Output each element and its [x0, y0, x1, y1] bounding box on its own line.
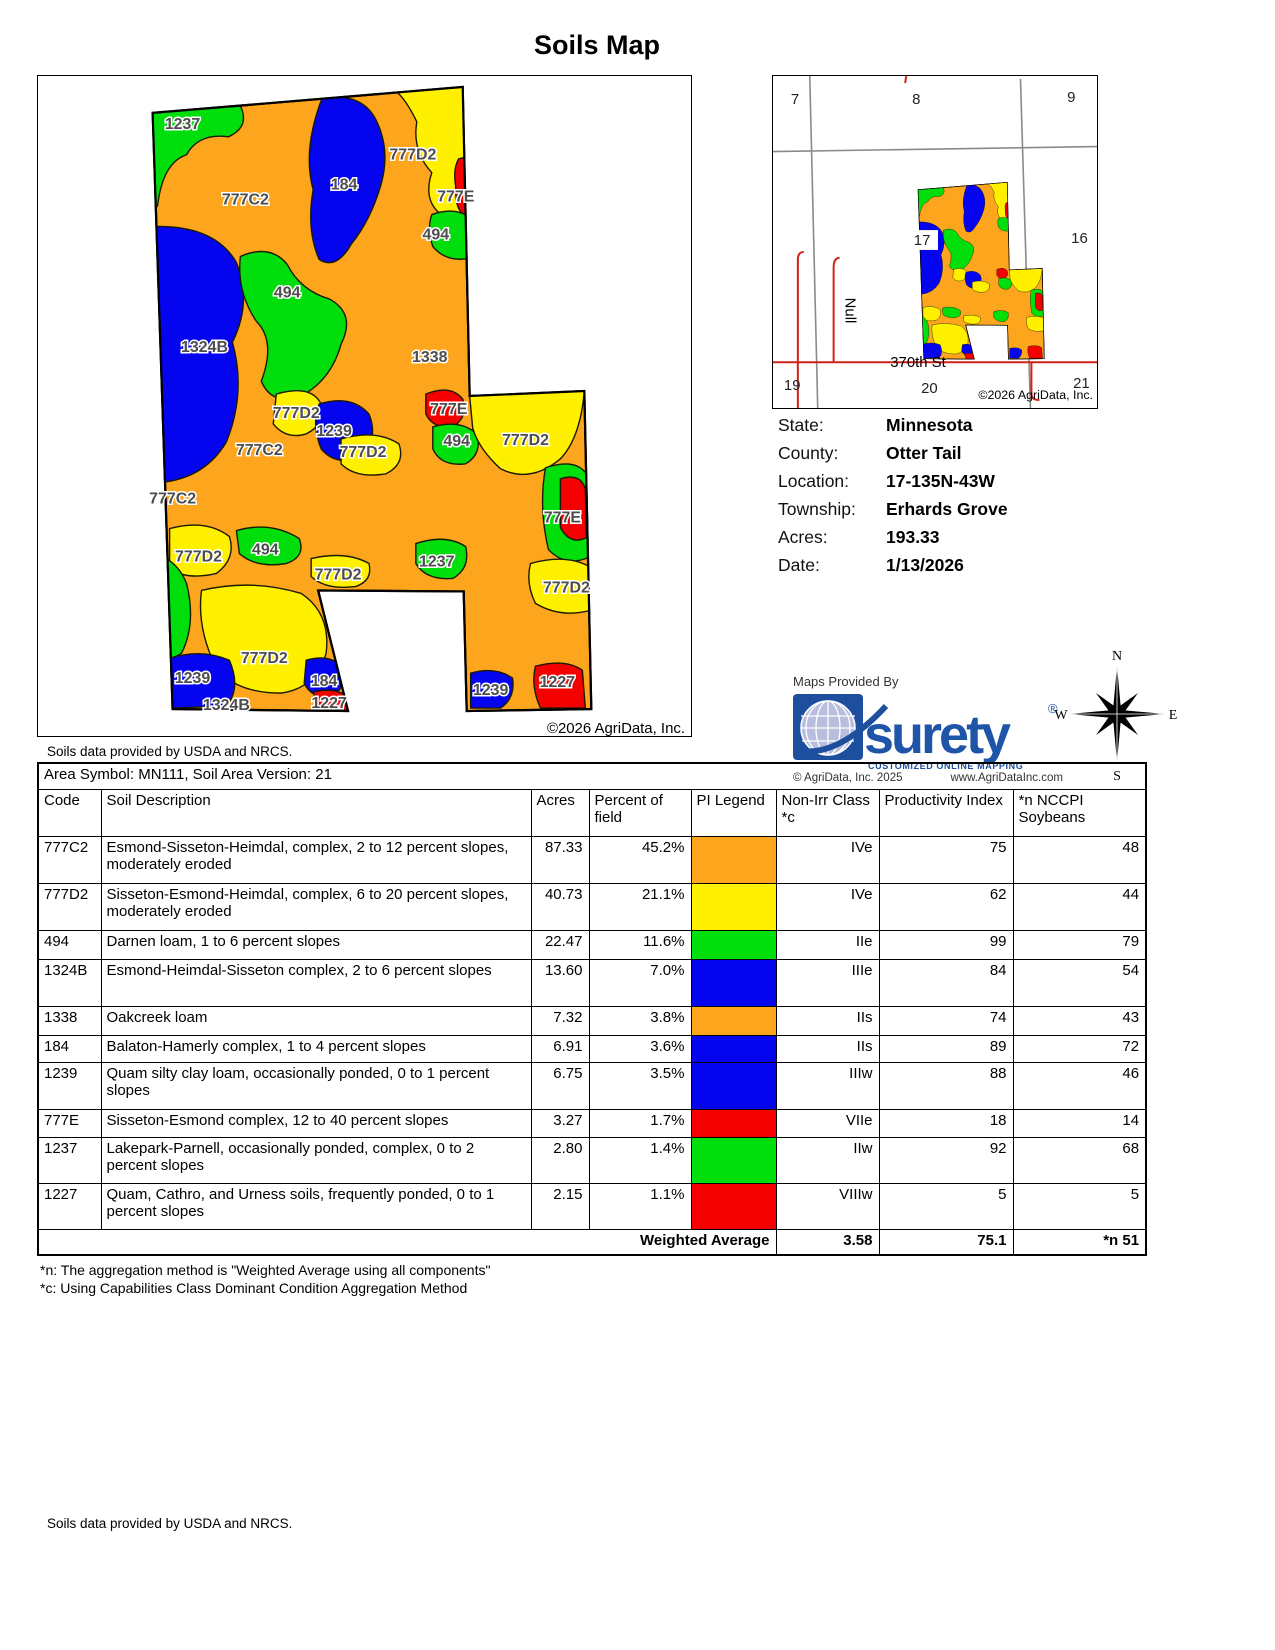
soil-description: Esmond-Sisseton-Heimdal, complex, 2 to 1… [101, 836, 531, 883]
percent-value: 11.6% [589, 930, 691, 959]
column-header: *n NCCPI Soybeans [1013, 789, 1146, 836]
info-value: 1/13/2026 [886, 555, 964, 576]
acres-value: 6.75 [531, 1062, 589, 1109]
nccpi-value: 79 [1013, 930, 1146, 959]
column-header: Non-Irr Class *c [776, 789, 879, 836]
productivity-index-value: 5 [879, 1183, 1013, 1229]
nccpi-value: 48 [1013, 836, 1146, 883]
non-irr-class-value: IIs [776, 1035, 879, 1062]
productivity-index-value: 62 [879, 883, 1013, 930]
soil-description: Lakepark-Parnell, occasionally ponded, c… [101, 1137, 531, 1183]
soil-code: 777C2 [38, 836, 101, 883]
soil-code-label: 1239 [473, 682, 509, 699]
nccpi-value: 54 [1013, 959, 1146, 1006]
soil-map: 1237777C2184777D2777E4944941324B1338777D… [37, 75, 692, 737]
acres-value: 3.27 [531, 1109, 589, 1137]
section-number: 8 [912, 92, 920, 108]
locator-copyright: ©2026 AgriData, Inc. [978, 388, 1093, 402]
nccpi-value: 72 [1013, 1035, 1146, 1062]
acres-value: 87.33 [531, 836, 589, 883]
soil-description: Oakcreek loam [101, 1006, 531, 1035]
pi-legend-swatch [691, 1035, 776, 1062]
info-value: Otter Tail [886, 443, 962, 464]
percent-value: 1.7% [589, 1109, 691, 1137]
table-row: 1239Quam silty clay loam, occasionally p… [38, 1062, 1146, 1109]
footnote-c: *c: Using Capabilities Class Dominant Co… [40, 1280, 467, 1296]
percent-value: 1.4% [589, 1137, 691, 1183]
field-shapes [153, 87, 592, 711]
section-number: 7 [791, 92, 799, 108]
acres-value: 2.80 [531, 1137, 589, 1183]
soil-code-label: 777E [544, 510, 581, 527]
soils-table-section: Area Symbol: MN111, Soil Area Version: 2… [37, 762, 1147, 1256]
footnote-n: *n: The aggregation method is "Weighted … [40, 1262, 490, 1278]
info-value: 17-135N-43W [886, 471, 995, 492]
soil-code-label: 494 [252, 542, 279, 559]
soil-code-label: 777D2 [241, 650, 288, 667]
info-value: 193.33 [886, 527, 940, 548]
non-irr-class-value: IVe [776, 883, 879, 930]
weighted-nccpi: *n 51 [1013, 1229, 1146, 1255]
field-thumbnail [918, 182, 1044, 359]
soil-code-label: 1239 [175, 670, 211, 687]
column-header: Code [38, 789, 101, 836]
soil-code-label: 1338 [412, 349, 448, 366]
info-label: Township: [778, 499, 886, 520]
pi-legend-swatch [691, 959, 776, 1006]
soil-code-label: 1227 [311, 695, 347, 712]
non-irr-class-value: IIs [776, 1006, 879, 1035]
soil-code-label: 777E [430, 401, 467, 418]
table-row: 777ESisseton-Esmond complex, 12 to 40 pe… [38, 1109, 1146, 1137]
column-header: Acres [531, 789, 589, 836]
soil-code-label: 494 [443, 433, 470, 450]
table-row: 1338Oakcreek loam7.323.8%IIs7443 [38, 1006, 1146, 1035]
soil-description: Quam silty clay loam, occasionally ponde… [101, 1062, 531, 1109]
productivity-index-value: 84 [879, 959, 1013, 1006]
surety-wordmark: surety [864, 705, 1011, 765]
table-row: 777D2Sisseton-Esmond-Heimdal, complex, 6… [38, 883, 1146, 930]
weighted-pi: 75.1 [879, 1229, 1013, 1255]
info-row: Date:1/13/2026 [778, 555, 1108, 583]
nccpi-value: 68 [1013, 1137, 1146, 1183]
column-header: Productivity Index [879, 789, 1013, 836]
area-symbol: Area Symbol: MN111, Soil Area Version: 2… [38, 763, 1146, 789]
percent-value: 1.1% [589, 1183, 691, 1229]
soil-description: Sisseton-Esmond complex, 12 to 40 percen… [101, 1109, 531, 1137]
soil-code-label: 777D2 [502, 432, 549, 449]
info-label: Location: [778, 471, 886, 492]
soils-data-note: Soils data provided by USDA and NRCS. [47, 744, 292, 759]
soil-code-label: 1239 [316, 423, 352, 440]
soil-code-label: 1237 [165, 116, 201, 133]
acres-value: 22.47 [531, 930, 589, 959]
weighted-average-label: Weighted Average [38, 1229, 776, 1255]
soil-description: Esmond-Heimdal-Sisseton complex, 2 to 6 … [101, 959, 531, 1006]
soil-code: 184 [38, 1035, 101, 1062]
info-row: Location:17-135N-43W [778, 471, 1108, 499]
nccpi-value: 14 [1013, 1109, 1146, 1137]
soil-code-label: 494 [422, 227, 449, 244]
soil-description: Sisseton-Esmond-Heimdal, complex, 6 to 2… [101, 883, 531, 930]
table-row: 1227Quam, Cathro, and Urness soils, freq… [38, 1183, 1146, 1229]
productivity-index-value: 88 [879, 1062, 1013, 1109]
percent-value: 3.6% [589, 1035, 691, 1062]
table-row: 184Balaton-Hamerly complex, 1 to 4 perce… [38, 1035, 1146, 1062]
acres-value: 40.73 [531, 883, 589, 930]
footer-soils-note: Soils data provided by USDA and NRCS. [47, 1516, 292, 1531]
soil-description: Quam, Cathro, and Urness soils, frequent… [101, 1183, 531, 1229]
compass-n-label: N [1112, 649, 1122, 664]
nccpi-value: 5 [1013, 1183, 1146, 1229]
info-row: County:Otter Tail [778, 443, 1108, 471]
weighted-non-irr: 3.58 [776, 1229, 879, 1255]
soil-code-label: 777D2 [175, 549, 222, 566]
productivity-index-value: 18 [879, 1109, 1013, 1137]
soil-code-label: 184 [311, 673, 338, 690]
soil-code-label: 777C2 [149, 491, 196, 508]
table-row: 494Darnen loam, 1 to 6 percent slopes22.… [38, 930, 1146, 959]
productivity-index-value: 75 [879, 836, 1013, 883]
soil-code-label: 777D2 [340, 444, 387, 461]
soil-code: 1239 [38, 1062, 101, 1109]
soil-code-label: 1237 [419, 554, 455, 571]
map-copyright: ©2026 AgriData, Inc. [547, 720, 685, 736]
percent-value: 3.8% [589, 1006, 691, 1035]
locator-map-svg: 17 78916192021 370th St Null ©2026 AgriD… [773, 76, 1097, 408]
pi-legend-swatch [691, 883, 776, 930]
pi-legend-swatch [691, 1137, 776, 1183]
section-number: 16 [1071, 231, 1088, 247]
soil-code: 494 [38, 930, 101, 959]
non-irr-class-value: VIIe [776, 1109, 879, 1137]
non-irr-class-value: IIIw [776, 1062, 879, 1109]
soil-code-label: 777D2 [543, 579, 590, 596]
soil-code: 777D2 [38, 883, 101, 930]
info-value: Erhards Grove [886, 499, 1008, 520]
soil-code-label: 494 [274, 284, 301, 301]
non-irr-class-value: IVe [776, 836, 879, 883]
soil-map-svg: 1237777C2184777D2777E4944941324B1338777D… [38, 76, 691, 736]
productivity-index-value: 74 [879, 1006, 1013, 1035]
productivity-index-value: 92 [879, 1137, 1013, 1183]
soil-code-label: 777C2 [222, 192, 269, 209]
soil-code-label: 777D2 [273, 405, 320, 422]
non-irr-class-value: IIe [776, 930, 879, 959]
pi-legend-swatch [691, 1062, 776, 1109]
table-header-row: CodeSoil DescriptionAcresPercent of fiel… [38, 789, 1146, 836]
null-road-label: Null [842, 298, 858, 324]
section-number: 19 [784, 378, 801, 394]
info-row: Township:Erhards Grove [778, 499, 1108, 527]
pi-legend-swatch [691, 930, 776, 959]
productivity-index-value: 99 [879, 930, 1013, 959]
pi-legend-swatch [691, 1183, 776, 1229]
table-row: 1237Lakepark-Parnell, occasionally ponde… [38, 1137, 1146, 1183]
pi-legend-swatch [691, 1109, 776, 1137]
soil-code-label: 1324B [203, 697, 250, 714]
pi-legend-swatch [691, 836, 776, 883]
info-row: State:Minnesota [778, 415, 1108, 443]
compass-e-label: E [1169, 708, 1178, 723]
soil-description: Darnen loam, 1 to 6 percent slopes [101, 930, 531, 959]
info-value: Minnesota [886, 415, 973, 436]
soil-code-label: 777E [437, 189, 474, 206]
soil-code-label: 777D2 [389, 147, 436, 164]
soil-code-label: 777C2 [236, 442, 283, 459]
soil-code-label: 777D2 [315, 566, 362, 583]
column-header: PI Legend [691, 789, 776, 836]
acres-value: 2.15 [531, 1183, 589, 1229]
locator-map: 17 78916192021 370th St Null ©2026 AgriD… [772, 75, 1098, 409]
percent-value: 21.1% [589, 883, 691, 930]
soil-code-label: 1227 [540, 674, 576, 691]
soil-code-label: 184 [331, 177, 358, 194]
acres-value: 6.91 [531, 1035, 589, 1062]
soil-code: 1227 [38, 1183, 101, 1229]
productivity-index-value: 89 [879, 1035, 1013, 1062]
page-title: Soils Map [534, 30, 660, 61]
table-row: 1324BEsmond-Heimdal-Sisseton complex, 2 … [38, 959, 1146, 1006]
non-irr-class-value: VIIIw [776, 1183, 879, 1229]
info-label: Date: [778, 555, 886, 576]
pi-legend-swatch [691, 1006, 776, 1035]
non-irr-class-value: IIw [776, 1137, 879, 1183]
nccpi-value: 43 [1013, 1006, 1146, 1035]
soil-code: 777E [38, 1109, 101, 1137]
info-label: State: [778, 415, 886, 436]
percent-value: 45.2% [589, 836, 691, 883]
soils-table: Area Symbol: MN111, Soil Area Version: 2… [37, 762, 1147, 1256]
weighted-average-row: Weighted Average 3.58 75.1 *n 51 [38, 1229, 1146, 1255]
percent-value: 7.0% [589, 959, 691, 1006]
maps-provided-by-label: Maps Provided By [793, 674, 899, 689]
nccpi-value: 44 [1013, 883, 1146, 930]
nccpi-value: 46 [1013, 1062, 1146, 1109]
column-header: Percent of field [589, 789, 691, 836]
soil-code: 1338 [38, 1006, 101, 1035]
area-symbol-row: Area Symbol: MN111, Soil Area Version: 2… [38, 763, 1146, 789]
section-number: 20 [921, 381, 938, 397]
percent-value: 3.5% [589, 1062, 691, 1109]
compass-w-label: W [1054, 708, 1068, 723]
surety-logo: Maps Provided By surety ® CUSTOMIZED ONL… [788, 668, 1078, 776]
soil-description: Balaton-Hamerly complex, 1 to 4 percent … [101, 1035, 531, 1062]
street-label: 370th St [890, 355, 946, 371]
acres-value: 13.60 [531, 959, 589, 1006]
info-label: Acres: [778, 527, 886, 548]
soil-code: 1237 [38, 1137, 101, 1183]
non-irr-class-value: IIIe [776, 959, 879, 1006]
field-number: 17 [914, 233, 931, 249]
acres-value: 7.32 [531, 1006, 589, 1035]
soil-code: 1324B [38, 959, 101, 1006]
table-row: 777C2Esmond-Sisseton-Heimdal, complex, 2… [38, 836, 1146, 883]
soil-code-label: 1324B [181, 339, 228, 356]
info-row: Acres:193.33 [778, 527, 1108, 555]
column-header: Soil Description [101, 789, 531, 836]
section-number: 9 [1067, 90, 1075, 106]
property-info: State:MinnesotaCounty:Otter TailLocation… [778, 415, 1108, 583]
info-label: County: [778, 443, 886, 464]
